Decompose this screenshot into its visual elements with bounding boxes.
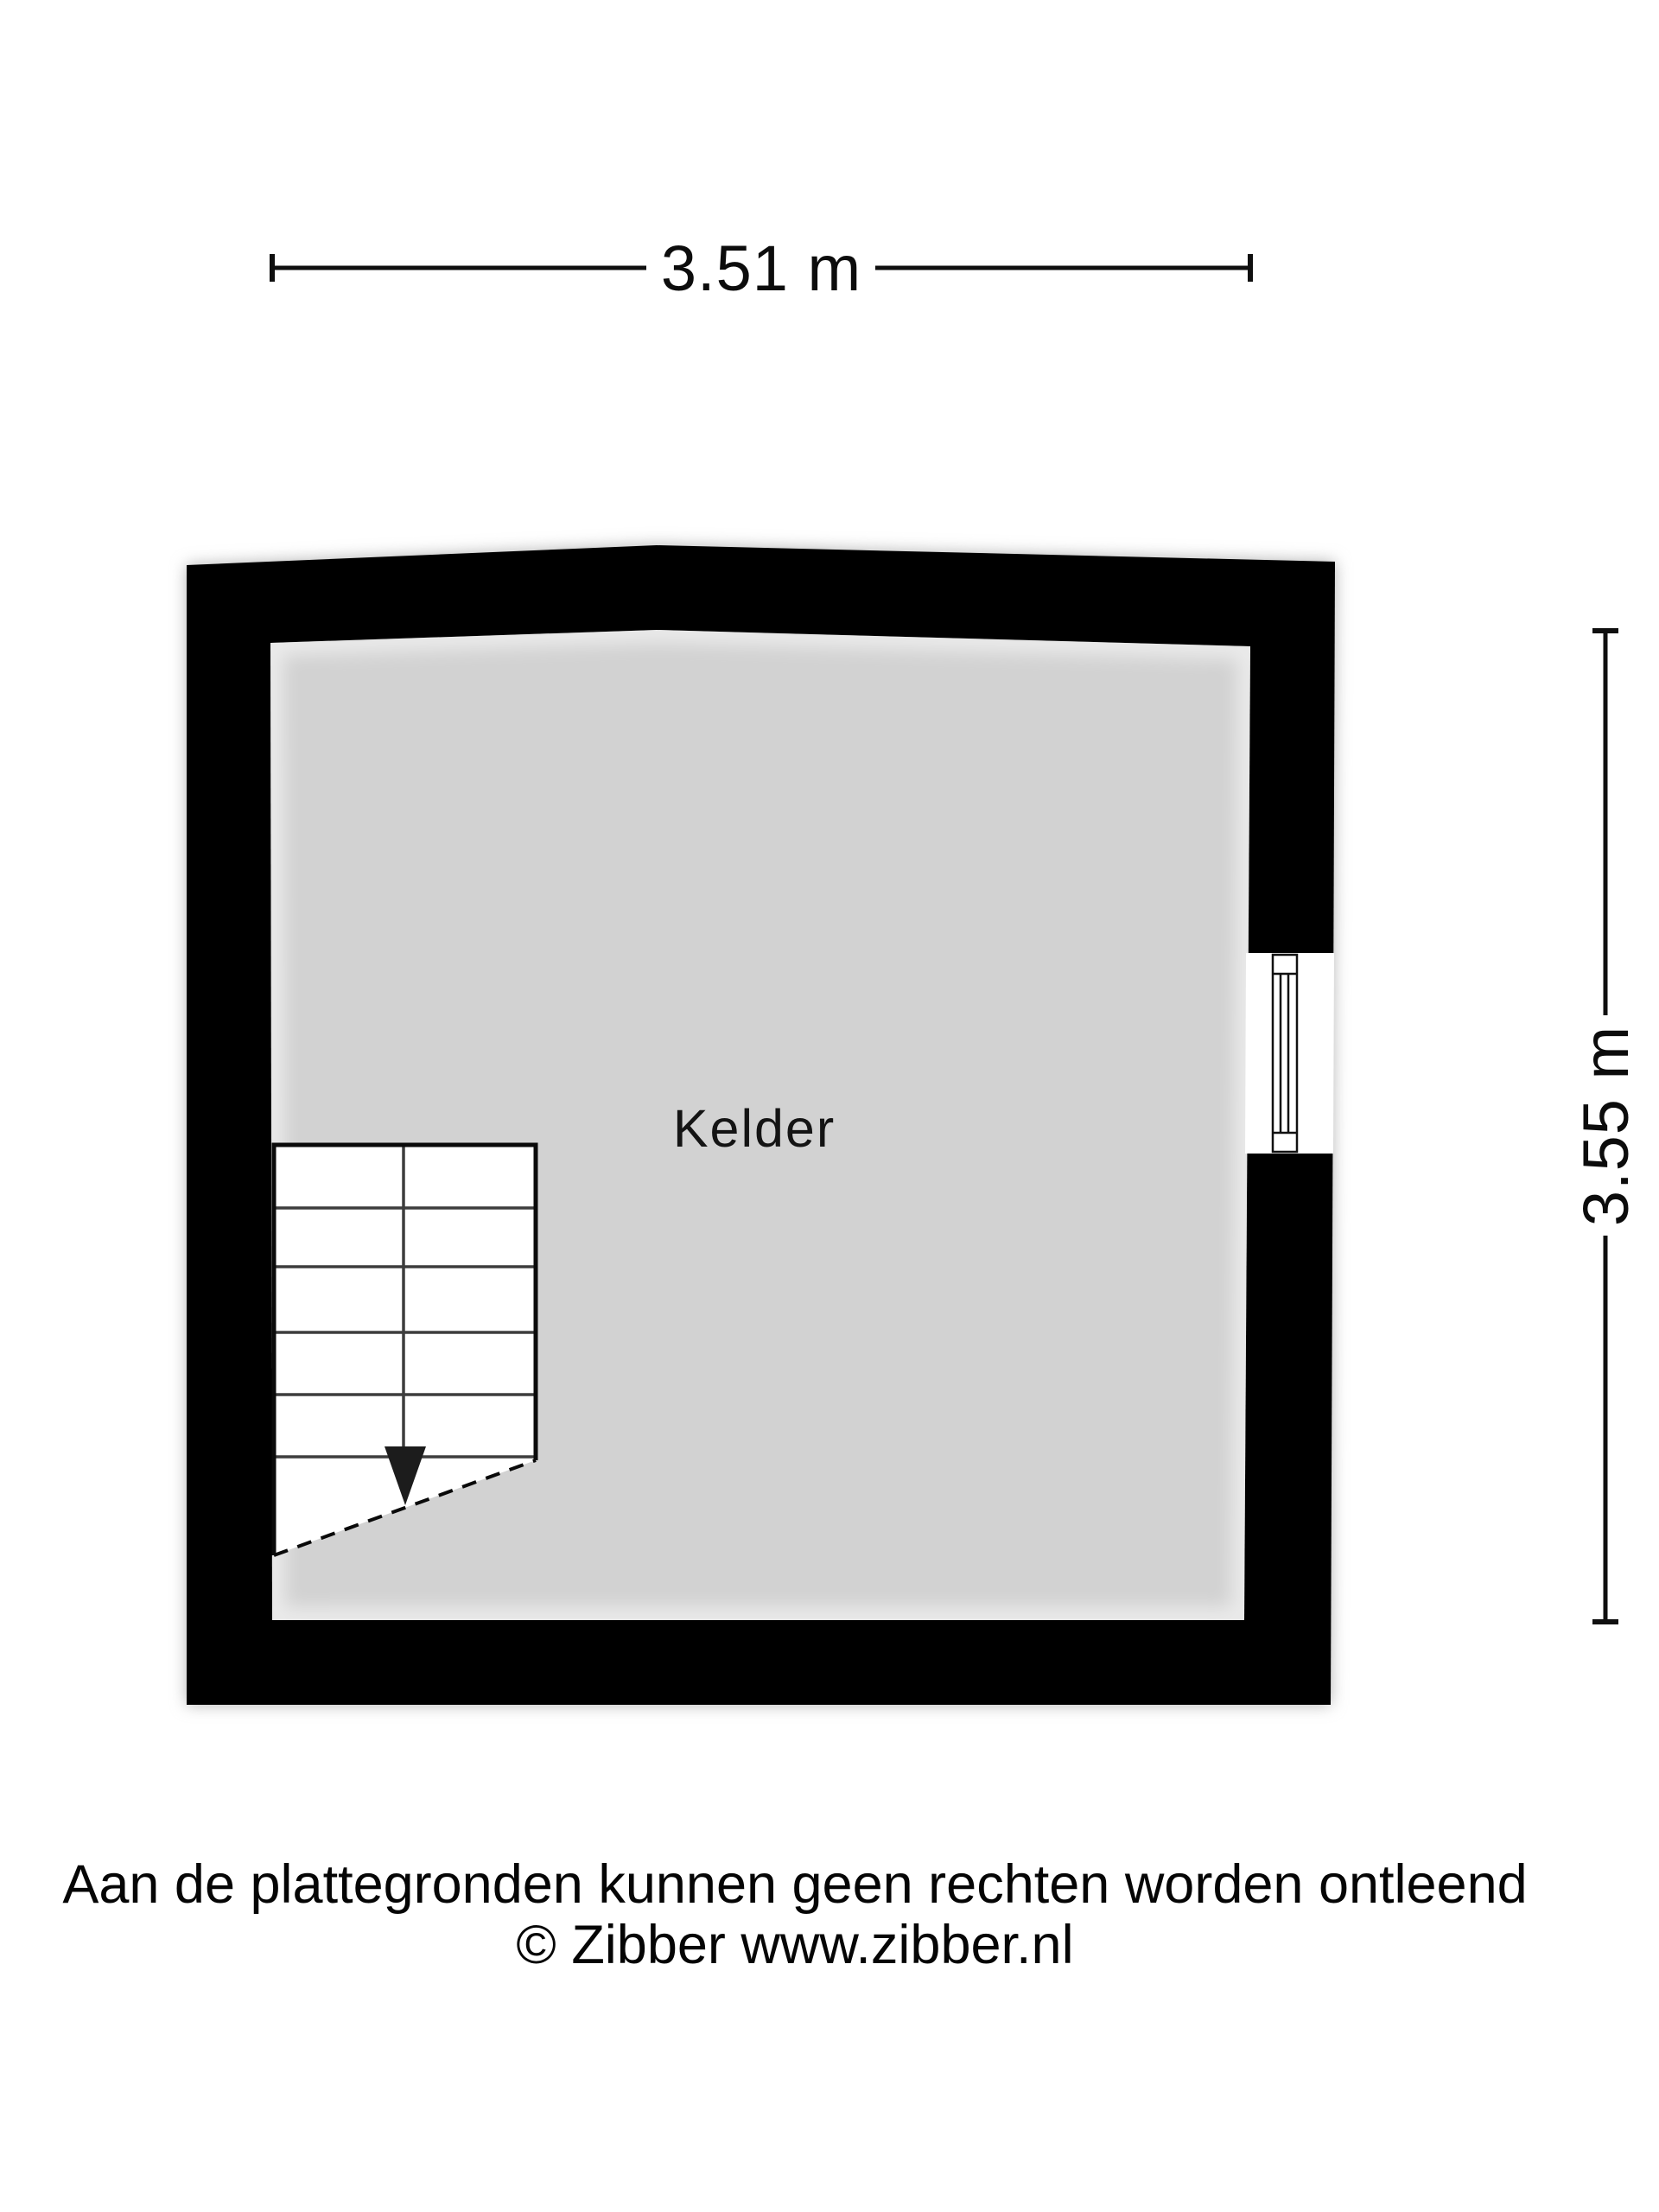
footer: Aan de plattegronden kunnen geen rechten… [0,1854,1590,1975]
height-dimension: 3.55 m [1570,631,1642,1622]
window [1245,953,1334,1154]
disclaimer-text: Aan de plattegronden kunnen geen rechten… [0,1854,1590,1915]
copyright-text: © Zibber www.zibber.nl [0,1915,1590,1975]
floor-plan-page: 3.51 m 3.55 m Kelder Aan de plattegronde… [0,0,1659,2212]
height-dimension-label: 3.55 m [1570,1026,1642,1226]
room-label: Kelder [673,1099,836,1158]
width-dimension-label: 3.51 m [661,232,861,304]
width-dimension: 3.51 m [272,232,1250,304]
window-icon [1273,955,1297,1152]
